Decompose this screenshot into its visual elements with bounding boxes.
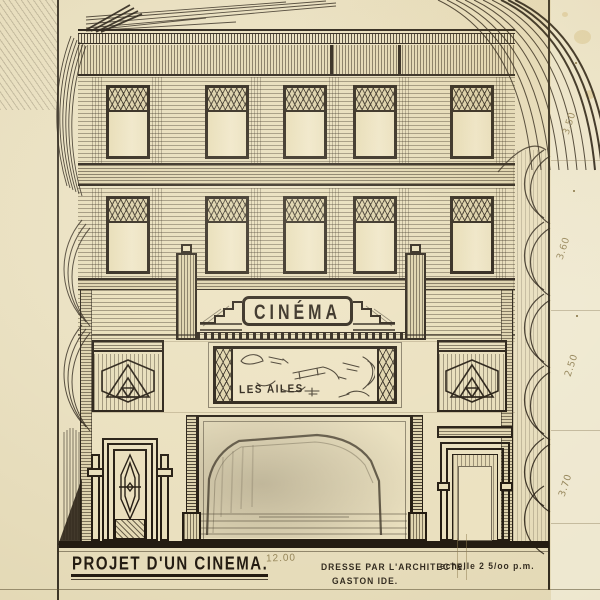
paper-stain: [562, 12, 568, 17]
door-kick-panel: [115, 519, 145, 539]
door-block-left: [437, 482, 450, 491]
billboard-lattice-right: [377, 349, 394, 401]
deco-panel-lintel: [94, 342, 162, 352]
base-plinth-band: [59, 541, 549, 548]
margin-guide-line: [551, 310, 600, 311]
deco-panel-lintel: [439, 342, 505, 352]
window-pane: [109, 223, 147, 271]
pylon-finial: [410, 244, 421, 253]
entrance-opening: [197, 415, 412, 541]
window: [106, 85, 150, 159]
frieze-separator: [398, 45, 401, 76]
billboard: LES AILES: [213, 346, 397, 404]
wall-flute-strip: [329, 188, 341, 278]
window: [283, 85, 327, 159]
title-underline-thick: [71, 574, 268, 577]
window-pane: [356, 223, 394, 271]
drawing-sheet: CINÉMA: [0, 0, 600, 600]
dentil-band: [197, 332, 405, 340]
molding-line-right: [405, 334, 515, 336]
left-margin-drapery: [56, 40, 86, 545]
door-pilaster-cap-left: [87, 468, 104, 477]
window-pane: [286, 223, 324, 271]
margin-guide-line: [551, 523, 600, 524]
door-hexagon-motif: [119, 453, 141, 521]
right-margin-cloud-band: [512, 150, 549, 542]
ground-line: [57, 551, 549, 552]
window-transom-lattice: [208, 88, 246, 112]
paper-stain: [574, 30, 591, 44]
pylon-finial: [181, 244, 192, 253]
margin-guide-line: [551, 430, 600, 431]
window-transom-lattice: [286, 199, 324, 223]
deco-panel-right: [437, 340, 507, 412]
window: [353, 85, 397, 159]
cornice-fan-hatching: [86, 0, 342, 30]
billboard-lattice-left: [216, 349, 233, 401]
marquee-step-wing-left: [199, 296, 242, 332]
side-door-right: [437, 426, 513, 541]
window-pane: [453, 223, 491, 271]
entrance-pencil-sketch: [199, 417, 409, 538]
title-underline-thin: [71, 579, 268, 580]
window-pane: [286, 112, 324, 156]
top-left-margin-hatch: [0, 0, 57, 110]
window: [106, 196, 150, 274]
window-transom-lattice: [453, 199, 491, 223]
bottom-sheet-line: [0, 589, 600, 590]
deco-panel-field: [439, 354, 505, 410]
scale-note: echelle 2 5/oo p.m.: [440, 560, 535, 571]
wall-flute-strip: [92, 77, 104, 163]
window-transom-lattice: [286, 88, 324, 112]
window: [205, 196, 249, 274]
frieze-separator: [330, 45, 333, 76]
triangle-hexagon-motif: [444, 358, 500, 404]
wall-flute-strip: [496, 188, 508, 278]
window-pane: [356, 112, 394, 156]
window-transom-lattice: [356, 88, 394, 112]
poster-title-text: LES AILES: [239, 383, 304, 397]
marquee-lintel-band: [78, 278, 515, 290]
top-right-cloud-sweep: [438, 0, 550, 175]
marquee-pylon-right: [405, 253, 426, 340]
pencil-tick: [457, 538, 458, 578]
architect-name: GASTON IDE.: [332, 575, 398, 586]
window-pane: [208, 223, 246, 271]
project-title: PROJET D'UN CINEMA.: [72, 553, 268, 574]
pencil-dot: [573, 190, 575, 192]
deco-panel-left: [92, 340, 164, 412]
door-pilaster-cap-right: [156, 468, 173, 477]
window-transom-lattice: [109, 199, 147, 223]
pencil-guide-line: [78, 412, 515, 413]
pencil-tick: [466, 534, 467, 580]
cinema-sign-text: CINÉMA: [254, 302, 341, 325]
triangle-hexagon-motif: [100, 358, 156, 404]
window: [283, 196, 327, 274]
wall-flute-strip: [251, 188, 263, 278]
window-pane: [208, 112, 246, 156]
cinema-sign-panel: CINÉMA: [242, 296, 353, 326]
marquee-step-wing-right: [353, 296, 396, 332]
window: [353, 196, 397, 274]
wall-flute-strip: [251, 77, 263, 163]
wall-flute-strip: [92, 188, 104, 278]
window: [205, 85, 249, 159]
window-pane: [109, 112, 147, 156]
door-lintel: [437, 426, 513, 438]
movie-poster: LES AILES: [235, 349, 375, 401]
entrance-pilaster-base-right: [408, 512, 427, 541]
entrance-pilaster-base-left: [182, 512, 201, 541]
door-leaf: [458, 466, 492, 541]
marquee-pylon-left: [176, 253, 197, 340]
window: [450, 196, 494, 274]
pencil-dot: [575, 62, 577, 64]
wall-flute-strip: [152, 188, 164, 278]
wall-flute-strip: [399, 77, 411, 163]
pencil-dot: [576, 315, 578, 317]
pencil-dimension-bottom: 12.00: [266, 552, 296, 564]
window-transom-lattice: [208, 199, 246, 223]
deco-panel-field: [94, 354, 162, 410]
window-transom-lattice: [356, 199, 394, 223]
margin-guide-line: [551, 160, 600, 161]
wall-flute-strip: [152, 77, 164, 163]
wall-flute-strip: [329, 77, 341, 163]
molding-line-left: [78, 334, 197, 336]
side-door-left: [86, 438, 174, 541]
window-transom-lattice: [109, 88, 147, 112]
